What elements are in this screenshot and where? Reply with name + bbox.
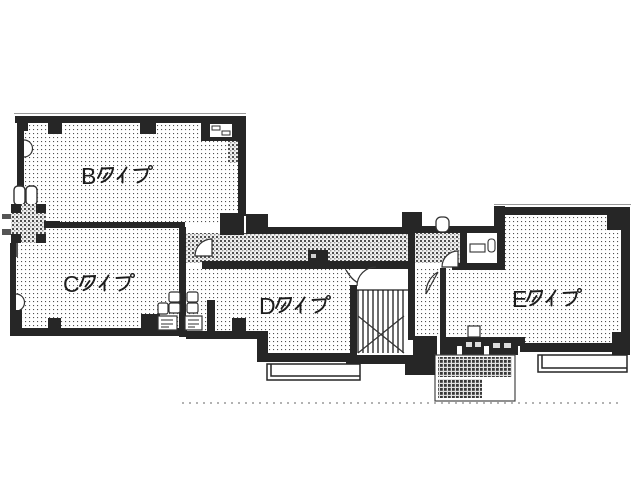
svg-text:B: B [81,163,96,189]
svg-text:E: E [512,286,527,312]
svg-text:C: C [63,271,80,297]
svg-text:D: D [259,293,276,319]
